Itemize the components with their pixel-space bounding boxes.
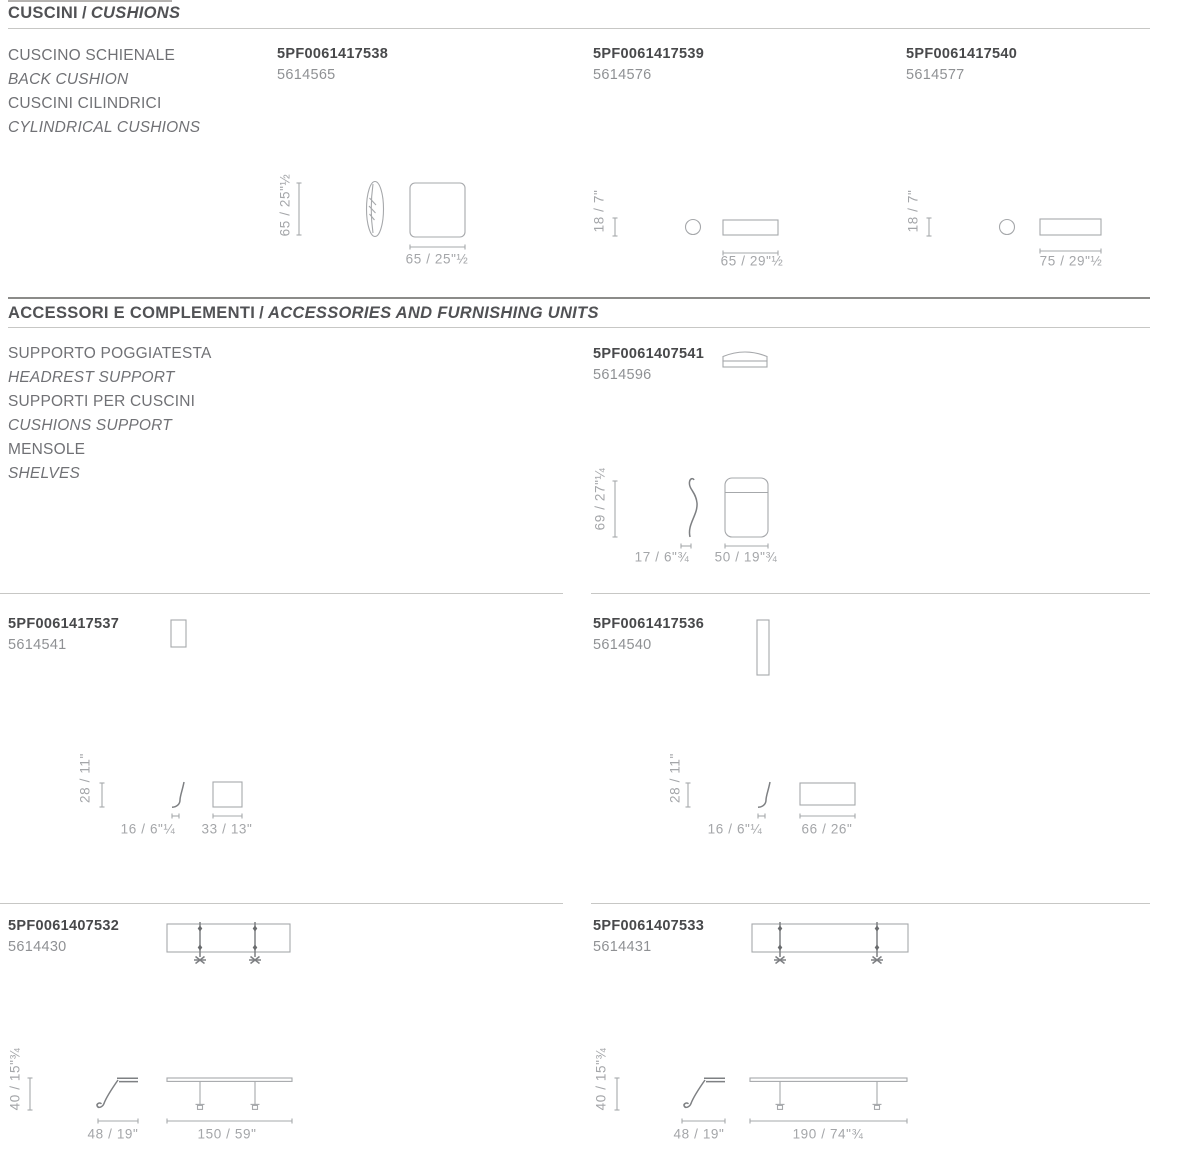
- dim-height-label: 28 / 11": [78, 753, 93, 803]
- support-side-profile: [758, 782, 770, 807]
- dim-width-label: 66 / 26": [802, 822, 853, 837]
- technical-drawings: [0, 0, 1181, 1172]
- dim-width-label: 75 / 29"½: [1040, 254, 1103, 269]
- dim-height-label: 18 / 7": [906, 190, 921, 233]
- shelf-bracket-side-profile: [704, 1078, 725, 1081]
- dim-width-label: 65 / 29"½: [721, 254, 784, 269]
- headrest-side-profile: [689, 479, 697, 537]
- dim-width-label: 50 / 19"¾: [715, 550, 778, 565]
- support-front-view: [213, 782, 242, 807]
- dim-depth-label: 48 / 19": [674, 1127, 725, 1142]
- support-side-profile: [172, 782, 184, 807]
- cushion-support-66-drawing: [686, 782, 856, 819]
- dim-height-label: 40 / 15"¾: [594, 1048, 609, 1111]
- cylindrical-cushion-75-drawing: [927, 218, 1102, 254]
- shelf-150-drawing: [28, 1078, 293, 1124]
- dim-depth-label: 48 / 19": [88, 1127, 139, 1142]
- cylinder-end-view: [686, 220, 701, 235]
- cushion-support-33-drawing: [100, 782, 243, 819]
- dim-depth-label: 17 / 6"¾: [635, 550, 690, 565]
- back-cushion-drawing: [297, 182, 466, 250]
- shelf-150-top-view: [167, 922, 290, 964]
- cushion-support-33-top-view: [171, 620, 186, 647]
- dim-height-label: 40 / 15"¾: [8, 1048, 23, 1111]
- dim-height-label: 65 / 25"½: [278, 174, 293, 237]
- dim-width-label: 33 / 13": [202, 822, 253, 837]
- cylinder-side-view: [1040, 219, 1101, 235]
- back-cushion-front-view: [410, 183, 465, 237]
- headrest-drawing: [613, 478, 769, 549]
- support-front-view: [800, 783, 855, 805]
- dim-height-label: 28 / 11": [668, 753, 683, 803]
- catalog-page: CUSCINI/CUSHIONS ACCESSORI E COMPLEMENTI…: [0, 0, 1181, 1172]
- shelf-bracket-side-profile: [117, 1078, 138, 1081]
- back-cushion-side-view: [367, 182, 384, 237]
- dim-height-label: 69 / 27"¼: [593, 468, 608, 531]
- shelf-front-view: [167, 1078, 292, 1081]
- cylindrical-cushion-65-drawing: [613, 218, 779, 256]
- wall-clamp-icon: [871, 922, 883, 964]
- shelf-front-view: [750, 1078, 907, 1081]
- dim-depth-label: 16 / 6"¼: [121, 822, 176, 837]
- dim-width-label: 65 / 25"½: [406, 252, 469, 267]
- dim-depth-label: 16 / 6"¼: [708, 822, 763, 837]
- headrest-top-view: [723, 352, 767, 367]
- wall-clamp-icon: [194, 922, 206, 964]
- shelf-190-top-view: [752, 922, 908, 964]
- dim-height-label: 18 / 7": [592, 190, 607, 233]
- cylinder-side-view: [723, 220, 778, 235]
- dim-width-label: 150 / 59": [198, 1127, 257, 1142]
- shelf-190-drawing: [615, 1078, 908, 1124]
- cylinder-end-view: [1000, 220, 1015, 235]
- wall-clamp-icon: [249, 922, 261, 964]
- wall-clamp-icon: [774, 922, 786, 964]
- cushion-support-66-top-view: [757, 620, 769, 675]
- dim-width-label: 190 / 74"¾: [793, 1127, 864, 1142]
- headrest-front-view: [725, 478, 768, 537]
